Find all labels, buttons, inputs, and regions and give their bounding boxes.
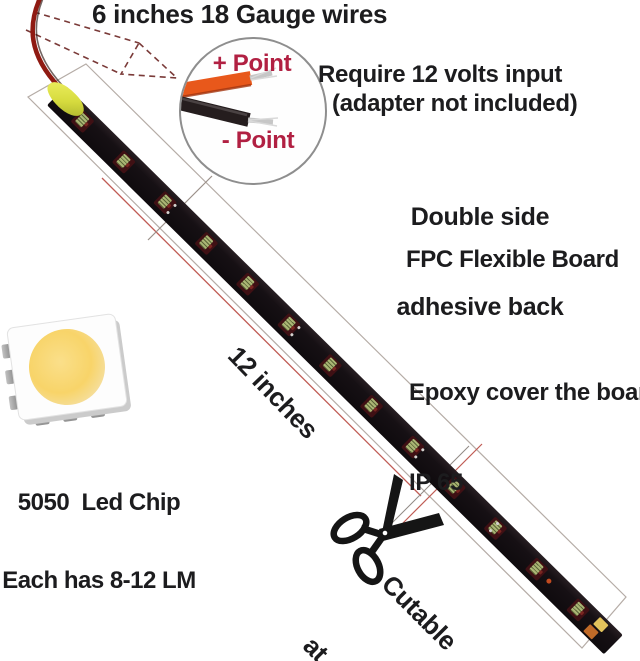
led-module [525,557,549,581]
label-led-chip: 5050 Led Chip Each has 8-12 LM [0,438,200,646]
label-epoxy-line2: IP 65 [409,468,640,498]
negative-wire [181,100,249,120]
label-plus-point: + Point [197,50,307,78]
strip-resistor [545,578,552,585]
label-wire-gauge: 6 inches 18 Gauge wires [92,0,387,30]
product-annotation-image: + Point - Point 6 inches 18 Gauge wires … [0,0,640,661]
label-chip-line2: Each has 8-12 LM [0,568,200,594]
label-cuttable-line1: Cutable [366,560,519,661]
label-power-requirement: Require 12 volts input [318,61,562,89]
label-fpc-board: FPC Flexible Board [406,246,619,274]
wire-detail-inset: + Point - Point [179,37,327,185]
label-adapter-note: (adapter not included) [332,90,577,118]
label-minus-point: - Point [203,127,313,155]
positive-wire [181,78,251,91]
led-module [277,313,301,337]
led-chip-photo [6,313,128,421]
solder-point [173,203,177,207]
solder-point [290,332,294,336]
led-module [194,231,218,255]
led-module [153,191,177,215]
led-module [236,272,260,296]
led-module [318,354,342,378]
led-module [566,598,590,622]
label-adhesive-line1: Double side [380,202,580,232]
led-module [112,150,136,174]
label-chip-line1: 5050 Led Chip [0,490,200,516]
label-epoxy-line1: Epoxy cover the board [409,378,640,408]
led-module [360,394,384,418]
solder-point [166,210,170,214]
solder-point [297,325,301,329]
